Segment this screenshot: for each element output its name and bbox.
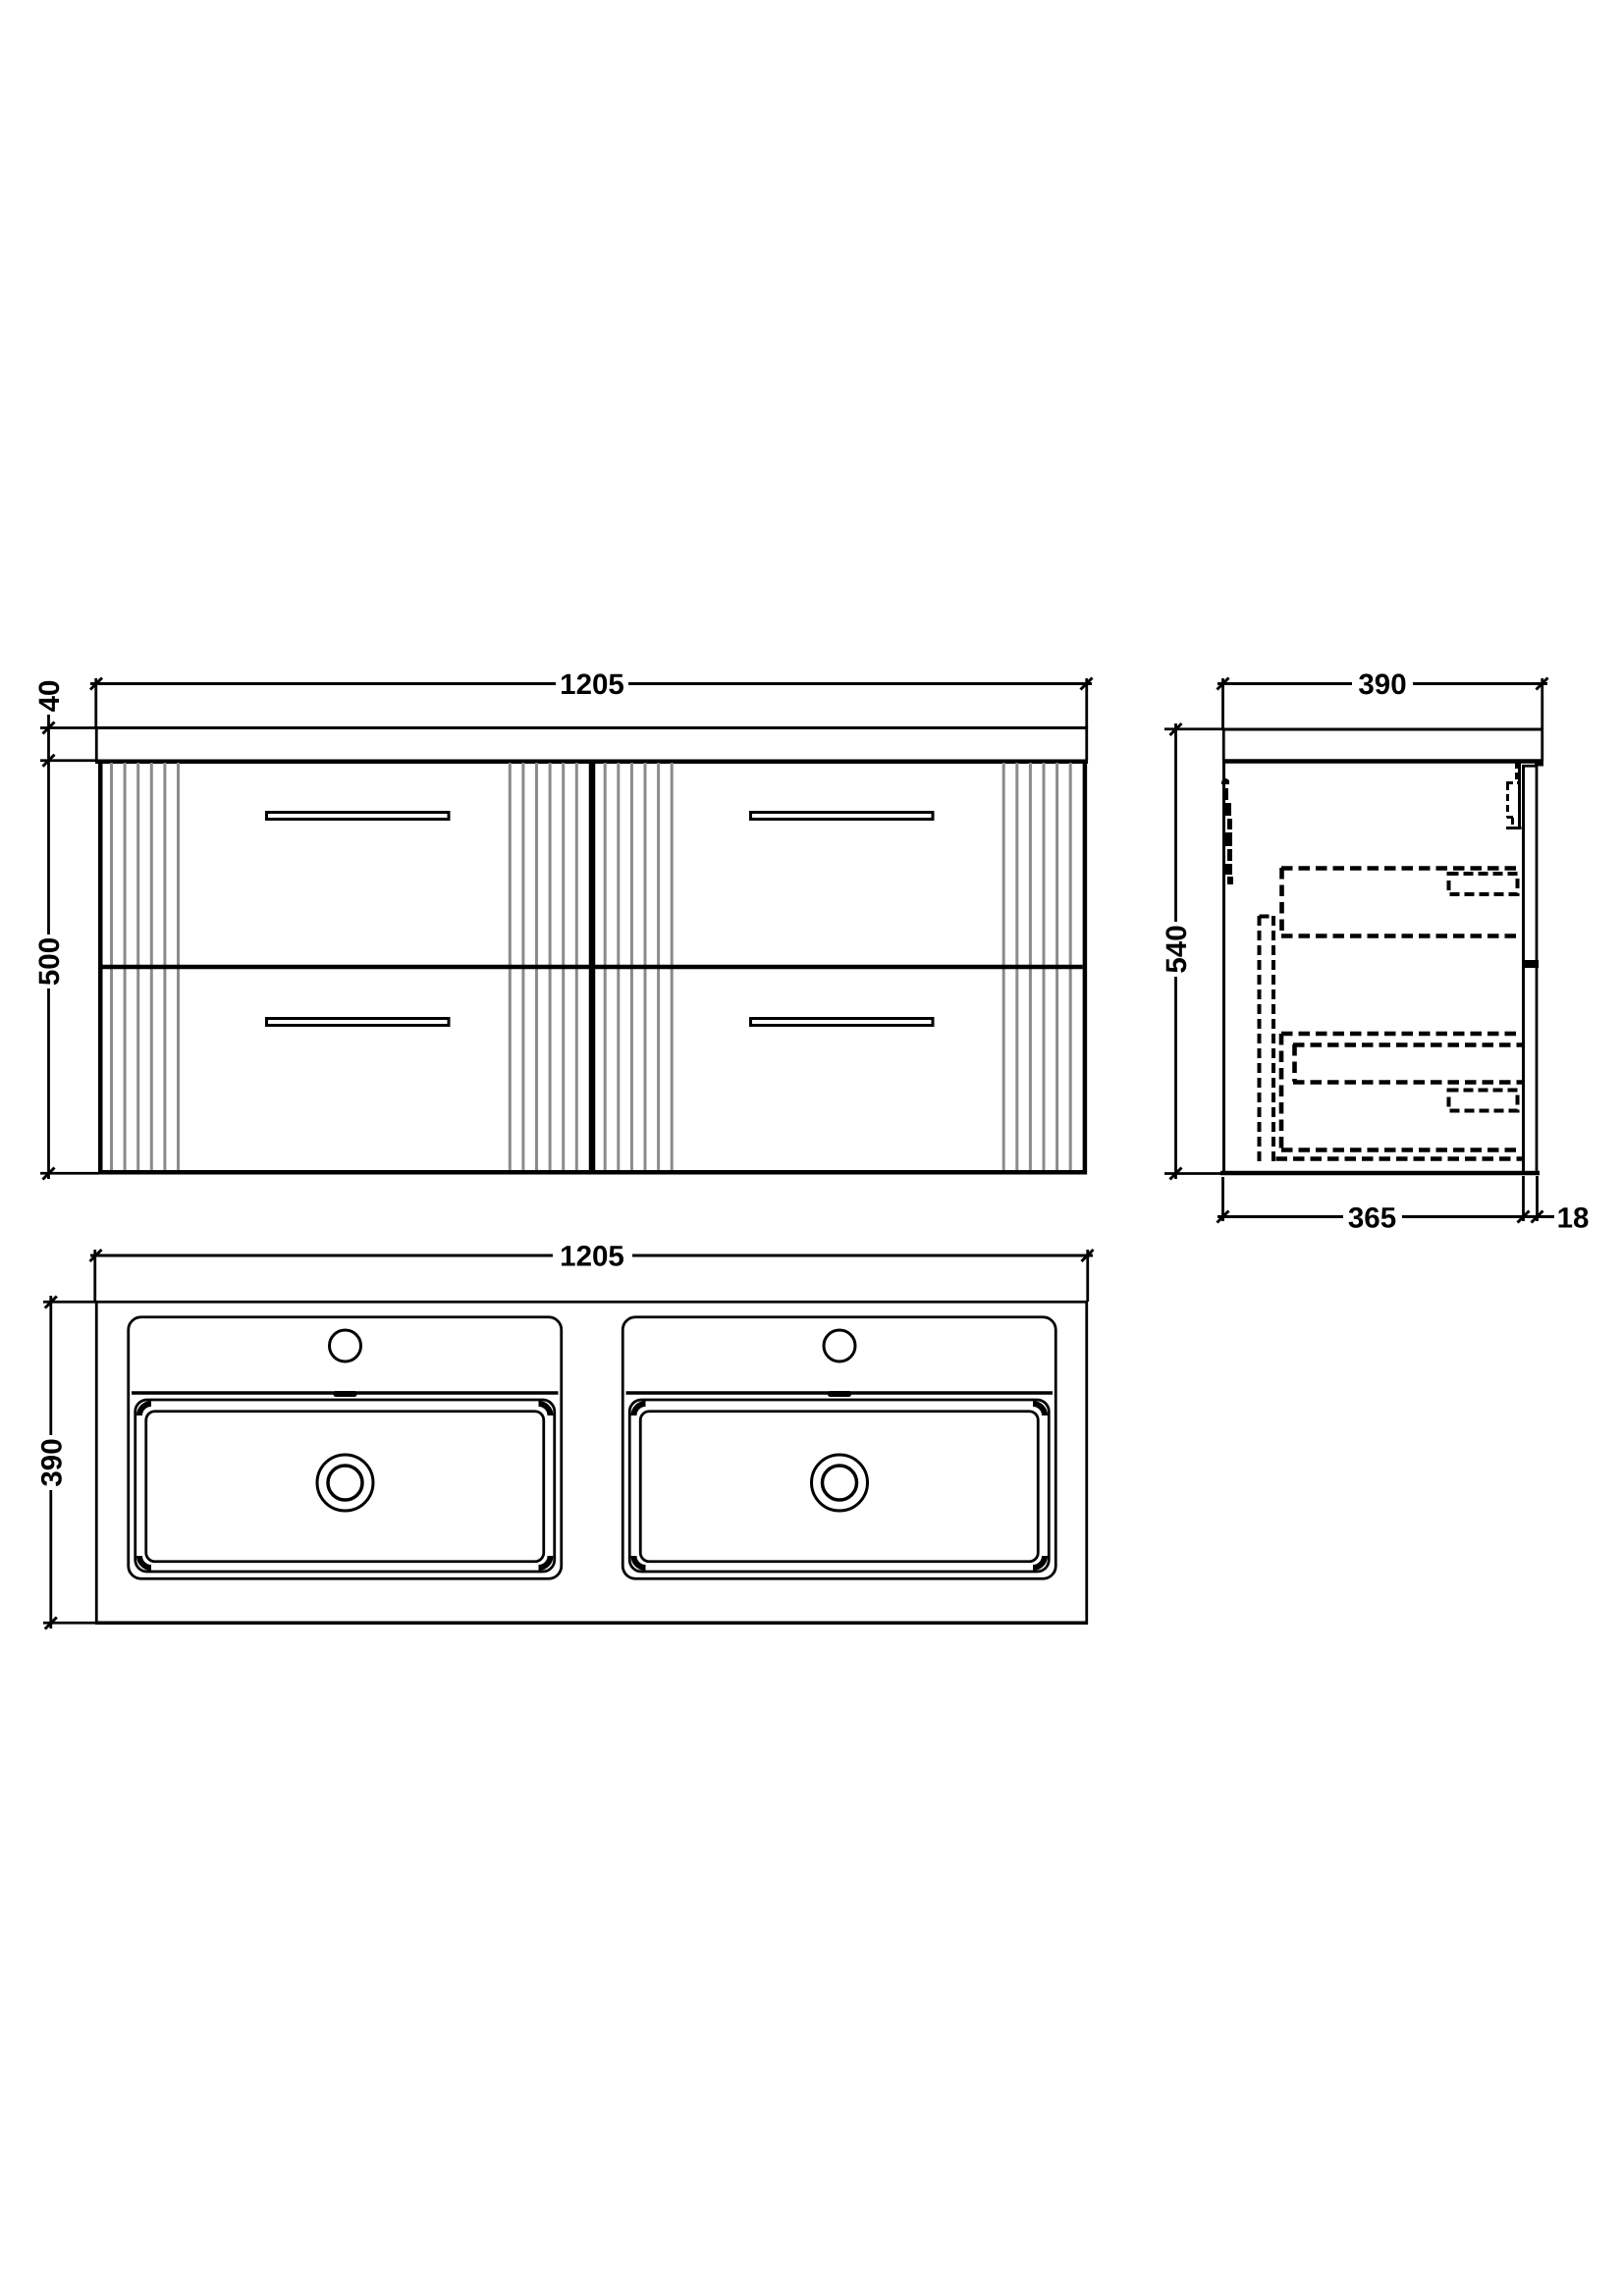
svg-text:40: 40 — [33, 680, 66, 713]
svg-text:1205: 1205 — [560, 1241, 624, 1273]
svg-text:390: 390 — [1358, 668, 1406, 701]
svg-text:1205: 1205 — [560, 668, 624, 701]
svg-text:18: 18 — [1557, 1202, 1590, 1235]
svg-text:500: 500 — [33, 937, 66, 986]
svg-text:540: 540 — [1161, 925, 1193, 973]
svg-text:365: 365 — [1348, 1202, 1396, 1235]
svg-text:390: 390 — [35, 1438, 68, 1486]
